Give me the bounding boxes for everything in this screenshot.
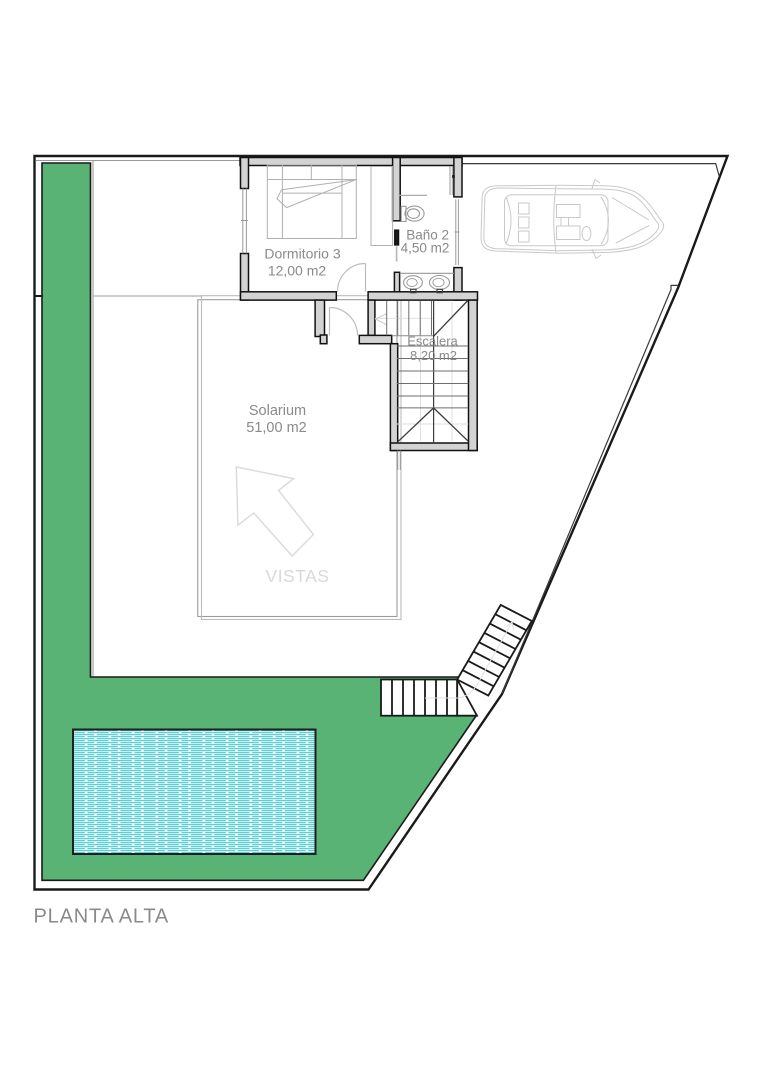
svg-text:VISTAS: VISTAS bbox=[266, 566, 330, 586]
svg-text:12,00 m2: 12,00 m2 bbox=[268, 263, 327, 279]
svg-text:4,50 m2: 4,50 m2 bbox=[401, 241, 450, 256]
svg-text:Solarium: Solarium bbox=[249, 403, 306, 419]
svg-text:PLANTA ALTA: PLANTA ALTA bbox=[34, 906, 170, 928]
svg-text:Dormitorio 3: Dormitorio 3 bbox=[264, 246, 340, 262]
svg-text:Escalera: Escalera bbox=[407, 334, 458, 349]
svg-text:51,00 m2: 51,00 m2 bbox=[246, 420, 306, 436]
svg-text:8,20 m2: 8,20 m2 bbox=[410, 348, 457, 363]
